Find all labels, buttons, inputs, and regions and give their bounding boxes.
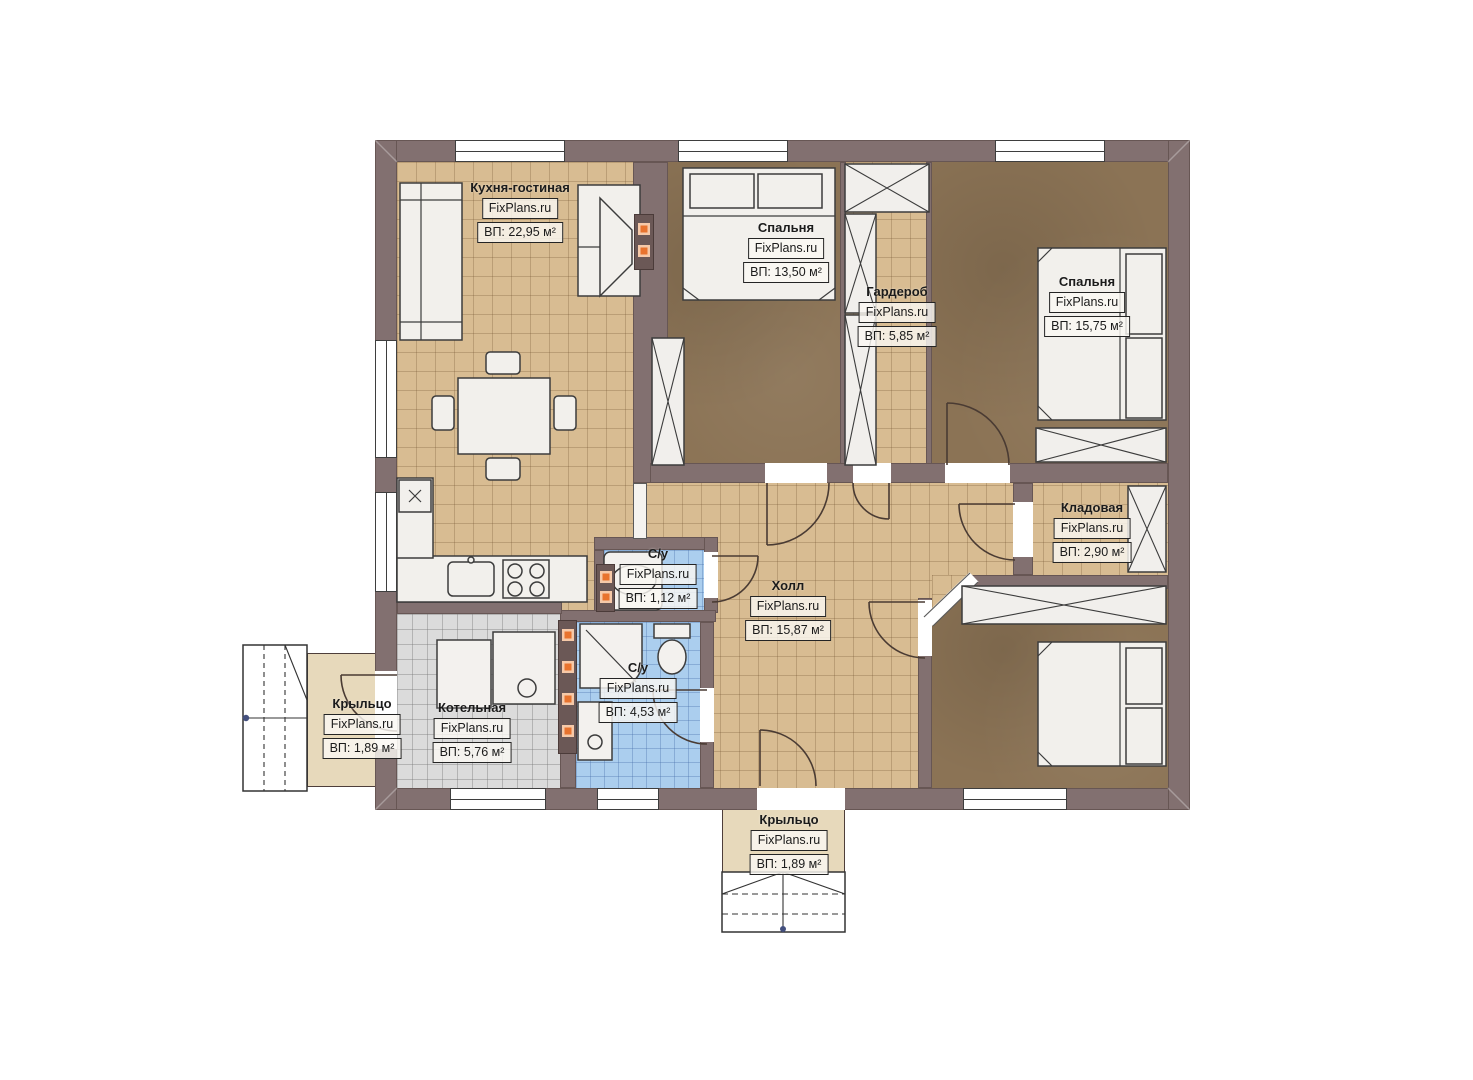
vent-panel-tv-icon (634, 214, 654, 270)
wall-bathrooms-divider (560, 610, 716, 622)
wall-storage-bedroom3 (970, 575, 1168, 589)
door-opening-storage (1013, 502, 1033, 557)
room-name: Крыльцо (323, 696, 402, 711)
area-tag: ВП: 5,76 м² (433, 742, 512, 763)
area-tag: ВП: 15,75 м² (1044, 316, 1130, 337)
area-tag: ВП: 13,50 м² (743, 262, 829, 283)
bedroom3-floor (932, 575, 1168, 788)
watermark-tag: FixPlans.ru (600, 678, 677, 699)
area-tag: ВП: 15,87 м² (745, 620, 831, 641)
window-kitchen-left-lower (375, 492, 397, 592)
area-tag: ВП: 2,90 м² (1053, 542, 1132, 563)
room-label-kitchen: Кухня-гостиная FixPlans.ru ВП: 22,95 м² (470, 180, 570, 243)
room-name: Гардероб (858, 284, 937, 299)
wall-bedroom1-wardrobe (840, 162, 846, 465)
wall-kitchen-boiler (397, 602, 562, 614)
floor-plan-canvas: Кухня-гостиная FixPlans.ru ВП: 22,95 м² … (0, 0, 1473, 1080)
vent-square-icon (600, 591, 612, 603)
bedroom1-floor (650, 162, 840, 465)
room-name: Спальня (743, 220, 829, 235)
vent-square-icon (562, 725, 574, 737)
door-opening-bathroom-large (700, 688, 714, 742)
outer-wall-right (1168, 140, 1190, 810)
area-tag: ВП: 1,89 м² (750, 854, 829, 875)
door-opening-bedroom1 (765, 463, 827, 483)
window-bedroom1-top (678, 140, 788, 162)
door-opening-bedroom2 (945, 463, 1010, 483)
room-name: Кладовая (1053, 500, 1132, 515)
window-bathroom-bottom (597, 788, 659, 810)
door-opening-bathroom-small (704, 552, 718, 598)
room-label-bathroom-small: С/у FixPlans.ru ВП: 1,12 м² (619, 546, 698, 609)
vent-square-icon (600, 571, 612, 583)
vent-square-icon (562, 661, 574, 673)
window-kitchen-top (455, 140, 565, 162)
room-label-hall: Холл FixPlans.ru ВП: 15,87 м² (745, 578, 831, 641)
room-label-porch-left: Крыльцо FixPlans.ru ВП: 1,89 м² (323, 696, 402, 759)
room-name: Спальня (1044, 274, 1130, 289)
watermark-tag: FixPlans.ru (1054, 518, 1131, 539)
stairs-left-icon (243, 645, 307, 791)
room-name: Крыльцо (750, 812, 829, 827)
area-tag: ВП: 4,53 м² (599, 702, 678, 723)
area-tag: ВП: 1,89 м² (323, 738, 402, 759)
window-bedroom2-top (995, 140, 1105, 162)
watermark-tag: FixPlans.ru (1049, 292, 1126, 313)
room-name: Котельная (433, 700, 512, 715)
room-label-bathroom-large: С/у FixPlans.ru ВП: 4,53 м² (599, 660, 678, 723)
room-label-porch-bottom: Крыльцо FixPlans.ru ВП: 1,89 м² (750, 812, 829, 875)
room-label-bedroom2: Спальня FixPlans.ru ВП: 15,75 м² (1044, 274, 1130, 337)
vent-square-icon (562, 629, 574, 641)
room-label-wardrobe: Гардероб FixPlans.ru ВП: 5,85 м² (858, 284, 937, 347)
room-label-storage: Кладовая FixPlans.ru ВП: 2,90 м² (1053, 500, 1132, 563)
area-tag: ВП: 5,85 м² (858, 326, 937, 347)
vent-panel-bath-large-icon (558, 620, 577, 754)
vent-panel-bath-small-icon (596, 564, 615, 612)
vent-square-icon (638, 245, 650, 257)
kitchen-hall-passage-jamb (633, 483, 647, 539)
area-tag: ВП: 22,95 м² (477, 222, 563, 243)
window-bedroom3-bottom (963, 788, 1067, 810)
window-kitchen-left (375, 340, 397, 458)
watermark-tag: FixPlans.ru (859, 302, 936, 323)
watermark-tag: FixPlans.ru (750, 596, 827, 617)
door-opening-wardrobe (853, 463, 891, 483)
room-name: С/у (599, 660, 678, 675)
watermark-tag: FixPlans.ru (324, 714, 401, 735)
watermark-tag: FixPlans.ru (751, 830, 828, 851)
vent-square-icon (562, 693, 574, 705)
wall-kitchen-bedroom1 (633, 162, 668, 483)
wall-bedrooms-hall (650, 463, 1168, 483)
watermark-tag: FixPlans.ru (620, 564, 697, 585)
room-name: С/у (619, 546, 698, 561)
vent-square-icon (638, 223, 650, 235)
watermark-tag: FixPlans.ru (482, 198, 559, 219)
door-opening-bedroom3 (918, 600, 932, 656)
door-opening-entry-bottom (757, 788, 845, 810)
stairs-bottom-icon (722, 872, 845, 932)
room-label-boiler: Котельная FixPlans.ru ВП: 5,76 м² (433, 700, 512, 763)
watermark-tag: FixPlans.ru (748, 238, 825, 259)
room-name: Холл (745, 578, 831, 593)
watermark-tag: FixPlans.ru (434, 718, 511, 739)
room-label-bedroom1: Спальня FixPlans.ru ВП: 13,50 м² (743, 220, 829, 283)
window-boiler-bottom (450, 788, 546, 810)
area-tag: ВП: 1,12 м² (619, 588, 698, 609)
room-name: Кухня-гостиная (470, 180, 570, 195)
